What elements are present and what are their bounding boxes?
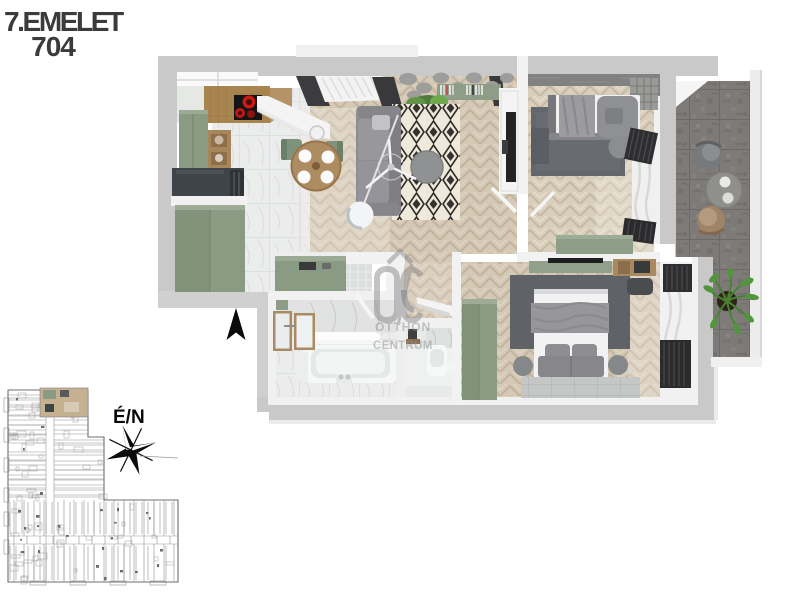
svg-text:É/N: É/N [113,406,145,428]
svg-text:704: 704 [31,31,76,62]
svg-text:OTTHON: OTTHON [375,320,431,334]
svg-text:CENTRUM: CENTRUM [373,340,433,352]
